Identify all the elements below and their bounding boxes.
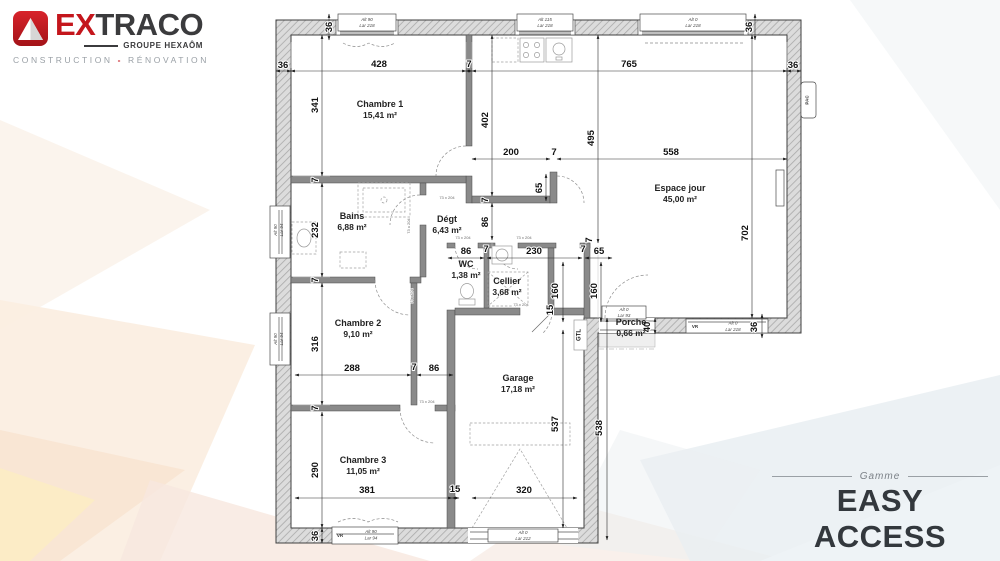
dimension-label: 200: [503, 147, 519, 158]
door-size-label: 73 x 204: [439, 195, 455, 200]
dimension-label: 36: [310, 531, 321, 542]
dimension-label: 538: [594, 420, 605, 436]
dimension-label: 36: [788, 60, 799, 71]
window-label: Alt 90: [273, 333, 278, 346]
door-size-label: 73 x 204: [419, 399, 435, 404]
dimension-label: 65: [534, 182, 545, 193]
extraco-logo-icon: [12, 10, 49, 47]
dimension-label: 65: [594, 246, 605, 257]
dimension-label: 86: [429, 363, 440, 374]
door-size-label: 73 x 204: [409, 288, 414, 304]
room-label-name: Espace jour: [654, 183, 706, 193]
room-label-name: WC: [459, 259, 474, 269]
dimension-label: 232: [310, 222, 321, 238]
toilet: [459, 299, 475, 305]
dimension-label: 7: [480, 197, 491, 202]
range-banner: Gamme EASY ACCESS: [772, 471, 988, 555]
dimension-label: 402: [480, 112, 491, 128]
window-label: Alt 115: [537, 17, 552, 22]
dimension-label: 36: [749, 322, 760, 333]
room-label-name: Dégt: [437, 214, 457, 224]
window-label: VR: [337, 533, 344, 538]
room-label-area: 1,38 m²: [451, 270, 480, 280]
brand-group: GROUPE HEXAÔM: [55, 41, 203, 50]
group-name: GROUPE HEXAÔM: [123, 41, 203, 50]
dimension-label: 7: [483, 244, 488, 255]
brand-name-accent: EX: [55, 7, 95, 42]
dimension-label: 341: [310, 96, 321, 113]
dimension-label: 86: [480, 217, 491, 228]
window-label: Lar 93: [618, 313, 631, 318]
dimension-label: 7: [411, 362, 416, 373]
dimension-label: 160: [550, 283, 561, 299]
dimension-label: 765: [621, 59, 638, 70]
window-label: GTL: [577, 329, 583, 341]
door-size-label: 73 x 204: [516, 235, 532, 240]
tagline-right: RÉNOVATION: [128, 55, 209, 65]
room-label-area: 45,00 m²: [663, 194, 697, 204]
dimension-label: 7: [310, 405, 321, 410]
group-divider: [84, 45, 118, 47]
room-label-area: 15,41 m²: [363, 110, 397, 120]
dimension-label: 15: [450, 484, 461, 495]
dimension-label: 7: [310, 177, 321, 182]
room-label-name: Chambre 1: [357, 99, 404, 109]
range-label-row: Gamme: [772, 471, 988, 482]
window-label: Lar 218: [359, 23, 375, 28]
room-label-area: 11,05 m²: [346, 466, 380, 476]
dimension-label: 381: [359, 485, 376, 496]
room-label-area: 3,68 m²: [492, 287, 521, 297]
range-name: EASY ACCESS: [772, 483, 988, 555]
room-label-name: Chambre 3: [340, 455, 387, 465]
wall-annotation: [776, 170, 784, 206]
room-label-area: 0,66 m²: [616, 328, 645, 338]
window-label: Alt 90: [364, 529, 377, 534]
brand-name: EXTRACO: [55, 10, 203, 40]
range-divider-left: [772, 476, 852, 477]
dimension-label: 428: [371, 59, 387, 70]
dimension-label: 290: [310, 462, 321, 478]
dimension-label: 7: [310, 277, 321, 282]
room-label-area: 6,43 m²: [432, 225, 461, 235]
window-label: Lar 94: [279, 223, 284, 236]
marketing-poster: 3642877653636363417232731672903640278649…: [0, 0, 1000, 561]
room-label-area: 9,10 m²: [343, 329, 372, 339]
dimension-label: 320: [516, 485, 532, 496]
window-label: Lar 212: [515, 536, 531, 541]
window-label: Lar 218: [685, 23, 701, 28]
range-divider-right: [908, 476, 988, 477]
window-label: PAC: [805, 95, 810, 105]
window-label: Lar 218: [537, 23, 553, 28]
window-label: Lar 94: [365, 536, 378, 541]
window-label: Alt 0: [517, 530, 528, 535]
room-label-name: Cellier: [493, 276, 521, 286]
dimension-label: 7: [551, 147, 556, 158]
door-size-label: 73 x 204: [455, 235, 471, 240]
dimension-label: 7: [580, 244, 585, 255]
dimension-label: 7: [584, 237, 595, 242]
range-label: Gamme: [860, 471, 901, 482]
dimension-label: 702: [740, 225, 751, 241]
extraco-logo: EXTRACO GROUPE HEXAÔM: [12, 10, 203, 50]
window-label: Alt 90: [273, 224, 278, 237]
dimension-label: 36: [278, 60, 289, 71]
tagline-separator: -: [118, 55, 123, 65]
window-label: VR: [692, 324, 699, 329]
tagline-left: CONSTRUCTION: [13, 55, 113, 65]
dimension-label: 537: [550, 416, 561, 432]
dimension-label: 36: [324, 22, 335, 33]
room-label-area: 6,88 m²: [337, 222, 366, 232]
window-label: Lar 94: [279, 332, 284, 345]
room-label-name: Bains: [340, 211, 365, 221]
room-label-name: Chambre 2: [335, 318, 382, 328]
brand-name-rest: TRACO: [95, 7, 203, 42]
dimension-label: 558: [663, 147, 679, 158]
window-label: Alt 0: [687, 17, 698, 22]
dimension-label: 7: [466, 59, 471, 70]
dimension-label: 316: [310, 336, 321, 352]
dimension-label: 288: [344, 363, 360, 374]
kitchen-hob: [520, 38, 544, 62]
dimension-label: 86: [461, 246, 472, 257]
window-label: Alt 0: [618, 307, 629, 312]
dimension-label: 15: [545, 304, 556, 315]
brand-tagline: CONSTRUCTION - RÉNOVATION: [13, 55, 209, 65]
room-label-area: 17,18 m²: [501, 384, 535, 394]
door-size-label: 73 x 204: [406, 218, 411, 234]
window-label: Alt 90: [360, 17, 373, 22]
dimension-label: 36: [744, 22, 755, 33]
room-label-name: Garage: [502, 373, 533, 383]
window-label: Alt 0: [727, 321, 738, 326]
dimension-label: 160: [589, 283, 600, 299]
door-size-label: 73 x 204: [513, 302, 529, 307]
window-label: Lar 218: [725, 327, 741, 332]
room-label-name: Porche: [616, 317, 647, 327]
dimension-label: 495: [586, 129, 597, 146]
dimension-label: 230: [526, 246, 542, 257]
